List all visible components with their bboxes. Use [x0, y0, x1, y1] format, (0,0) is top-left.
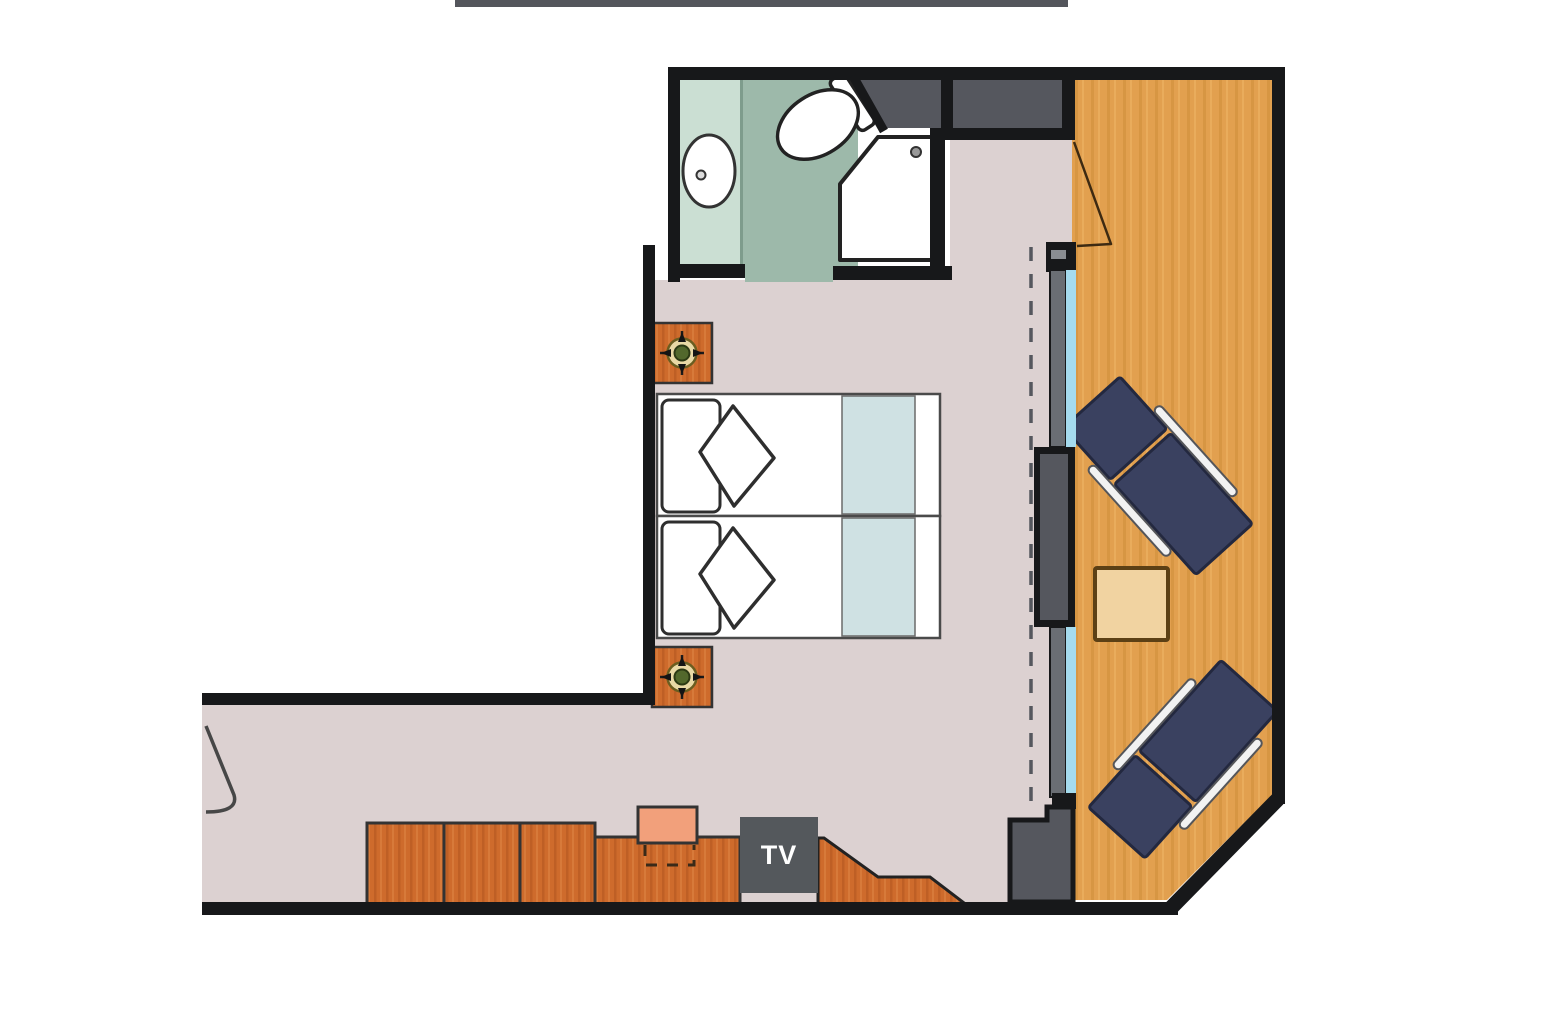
- nightstand-bottom: [652, 647, 712, 707]
- balcony-table: [1095, 568, 1168, 640]
- tv-unit: TV: [740, 817, 818, 893]
- window-glass-top: [1066, 270, 1076, 447]
- bathroom-door-opening: [745, 262, 833, 282]
- sink: [683, 135, 735, 207]
- bedroom-balcony-wall-block: [1010, 807, 1073, 902]
- window-frame-bottom: [1050, 627, 1066, 797]
- nightstand-top: [652, 323, 712, 383]
- window-center-pillar: [1034, 447, 1075, 627]
- desk: [595, 837, 740, 910]
- floor-plan-canvas: TV: [0, 0, 1548, 1032]
- bed-bottom-runner: [842, 518, 915, 636]
- window-frame-top: [1050, 270, 1066, 447]
- cabinet-run: [367, 823, 595, 910]
- bathroom-zone-divider: [740, 80, 743, 264]
- window-bottom-cap: [1052, 793, 1076, 809]
- tv-label: TV: [761, 840, 798, 870]
- floor-plan-drawing: TV: [0, 0, 1548, 1032]
- twin-beds: [657, 394, 940, 638]
- window-glass-bottom: [1066, 627, 1076, 797]
- desk-chair: [638, 807, 697, 843]
- bed-top-runner: [842, 396, 915, 514]
- closet: [952, 80, 1062, 128]
